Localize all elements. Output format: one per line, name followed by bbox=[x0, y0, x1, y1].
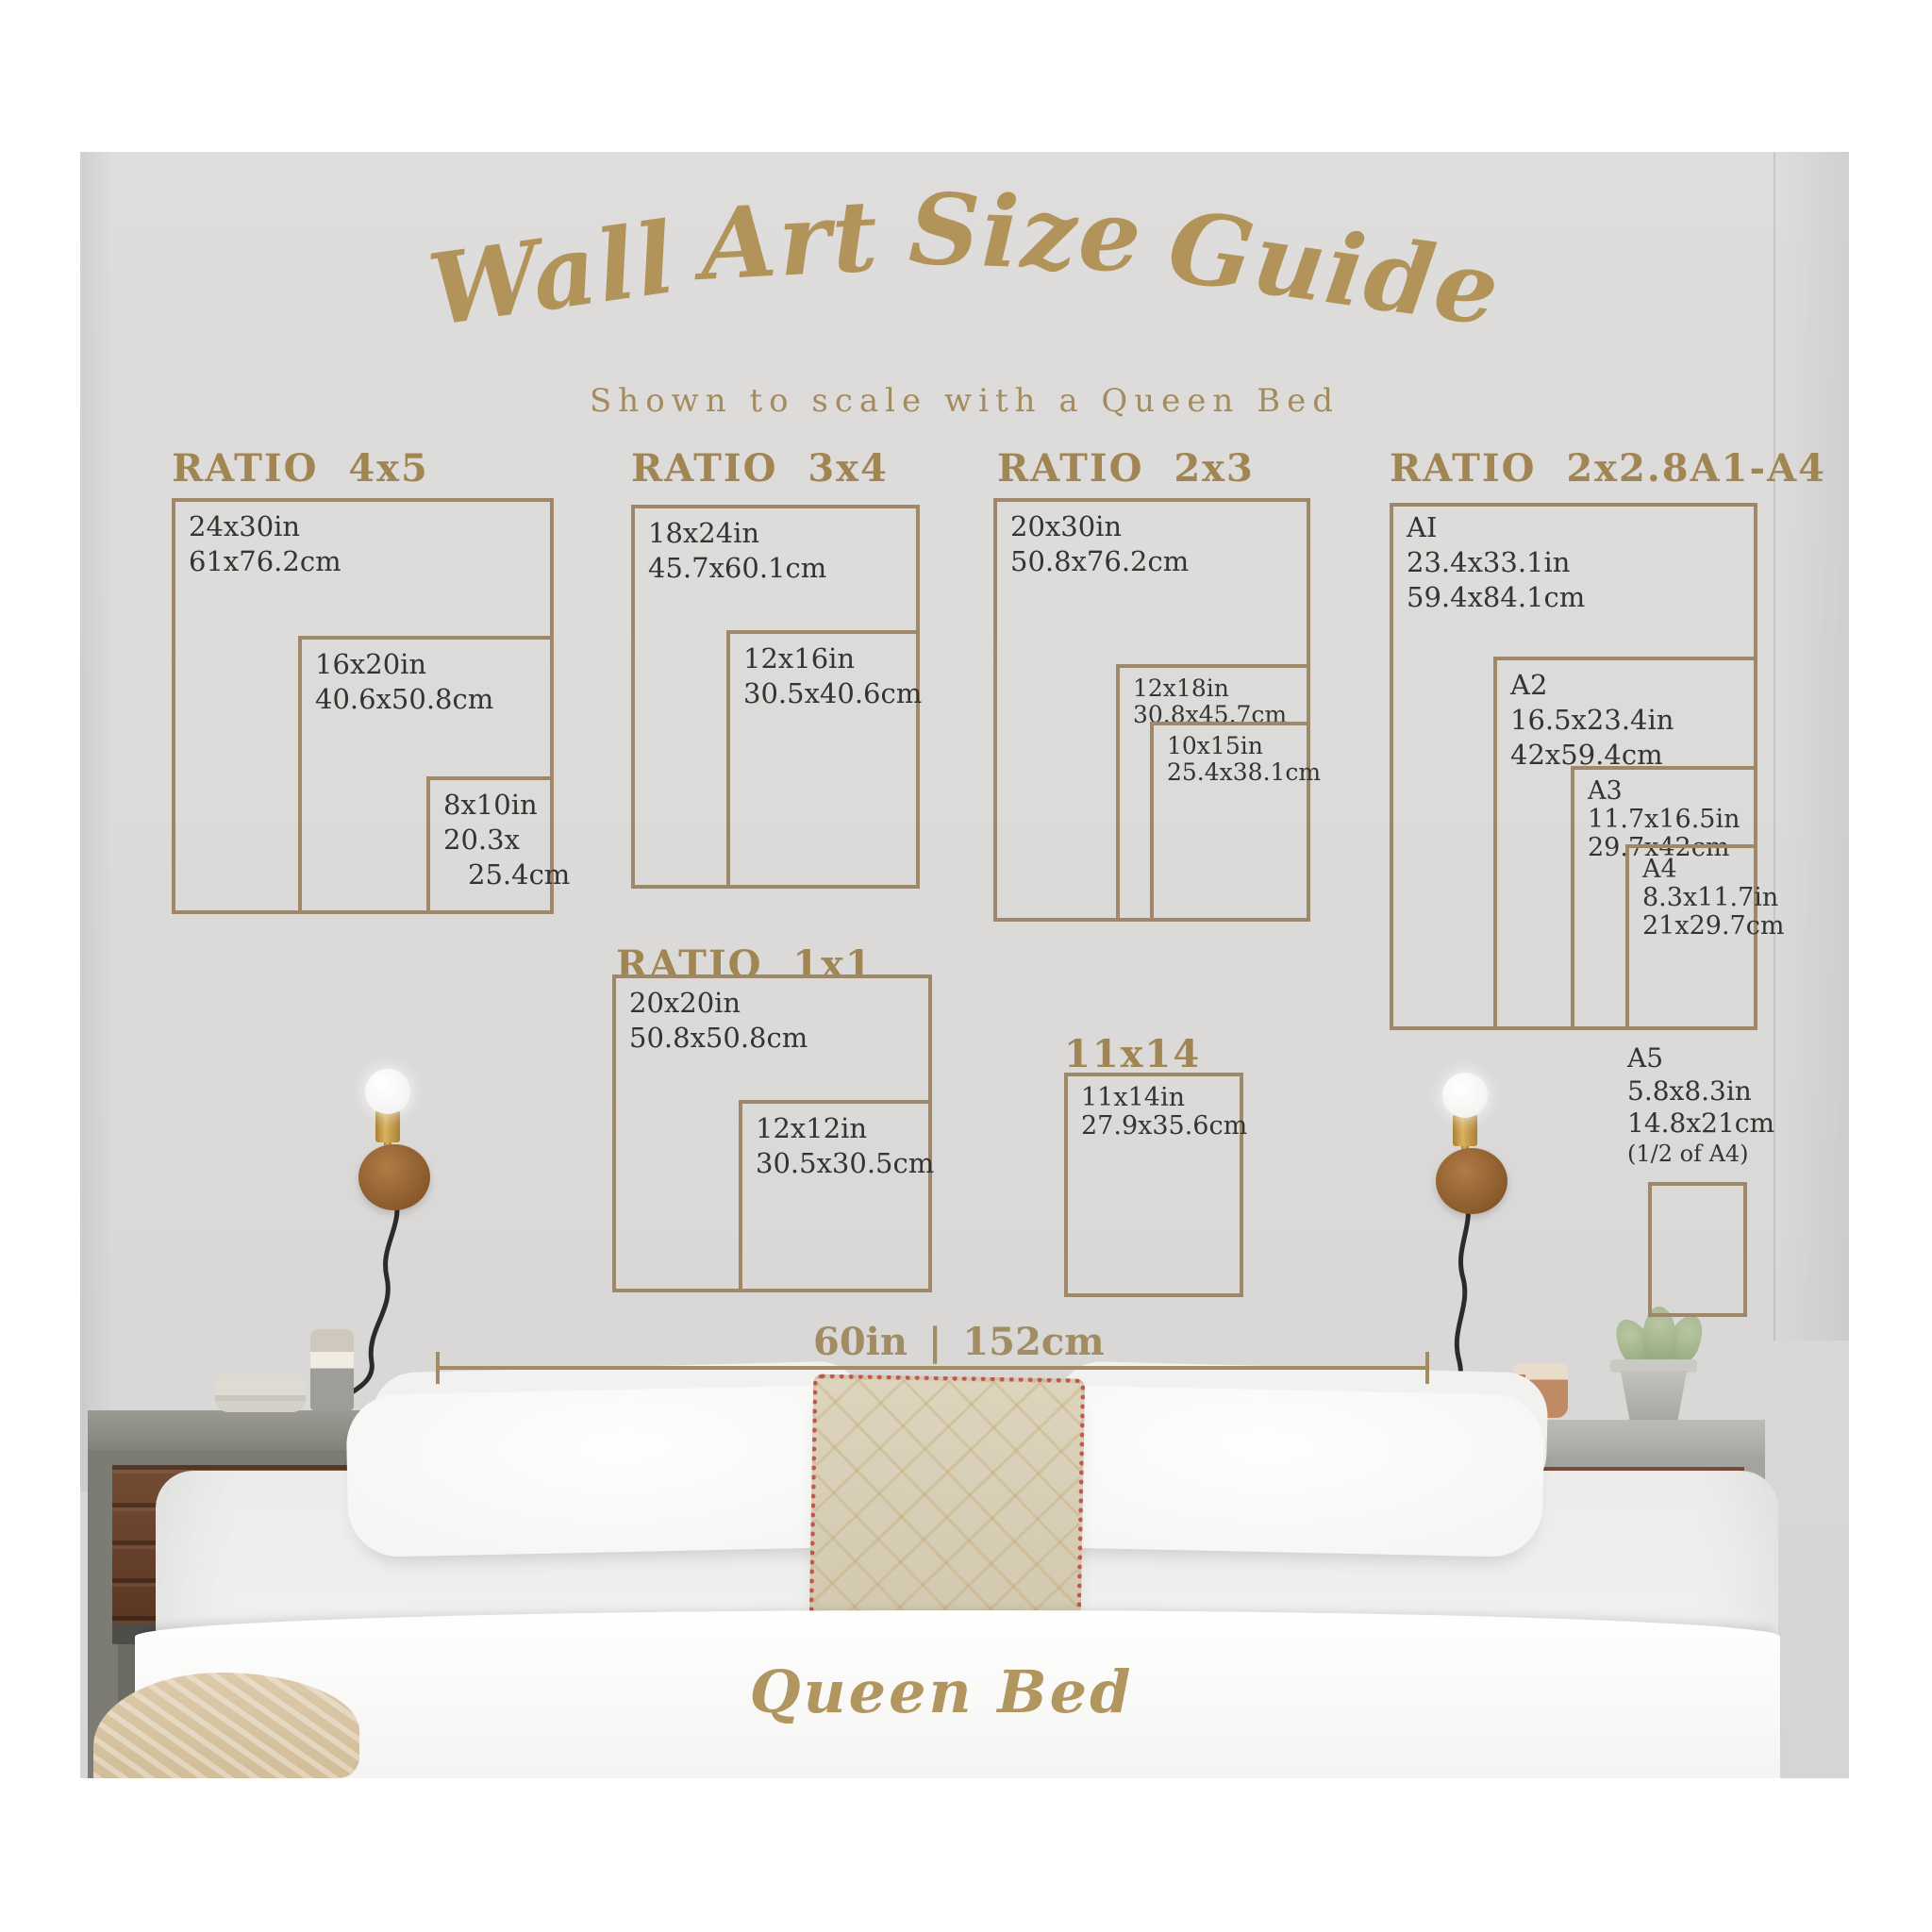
bed-width-tick-right bbox=[1425, 1352, 1429, 1384]
group-header-11x14: 11x14 bbox=[1064, 1032, 1201, 1076]
size-label: 10x15in25.4x38.1cm bbox=[1167, 733, 1321, 786]
bed-width-tick-left bbox=[436, 1352, 440, 1384]
bedroom-photo: Wall Art Size Guide Shown to scale with … bbox=[80, 152, 1849, 1778]
size-box-11x14: 11x14in27.9x35.6cm bbox=[1064, 1073, 1243, 1297]
size-label: 20x20in50.8x50.8cm bbox=[629, 986, 808, 1056]
queen-bed-label: Queen Bed bbox=[658, 1657, 1224, 1726]
size-box-10x15: 10x15in25.4x38.1cm bbox=[1150, 722, 1310, 922]
size-box-8x10: 8x10in20.3x 25.4cm bbox=[426, 776, 554, 914]
size-label: 16x20in40.6x50.8cm bbox=[315, 647, 493, 717]
group-header-2x3: RATIO 2x3 bbox=[997, 446, 1255, 491]
size-box-12x16: 12x16in30.5x40.6cm bbox=[726, 630, 920, 889]
size-label: AI23.4x33.1in 59.4x84.1cm bbox=[1407, 510, 1585, 615]
size-label: 12x12in30.5x30.5cm bbox=[756, 1111, 934, 1181]
size-label: 12x18in30.8x45.7cm bbox=[1133, 675, 1287, 728]
group-header-3x4: RATIO 3x4 bbox=[631, 446, 889, 491]
size-label: 11x14in27.9x35.6cm bbox=[1081, 1084, 1247, 1141]
title-word: Size bbox=[908, 171, 1145, 295]
size-label: A216.5x23.4in 42x59.4cm bbox=[1510, 668, 1674, 773]
size-label: 24x30in61x76.2cm bbox=[189, 509, 341, 579]
size-box-a4: A48.3x11.7in 21x29.7cm bbox=[1625, 844, 1757, 1030]
page-subtitle: Shown to scale with a Queen Bed bbox=[80, 382, 1849, 420]
size-label: 18x24in45.7x60.1cm bbox=[648, 516, 826, 586]
size-box-a5 bbox=[1648, 1182, 1747, 1317]
size-label: 8x10in20.3x 25.4cm bbox=[443, 788, 570, 892]
group-header-a-range: A1-A4 bbox=[1690, 446, 1826, 491]
group-header-2x2.8: RATIO 2x2.8 A1-A4 bbox=[1390, 446, 1757, 491]
title-word: Art bbox=[698, 177, 883, 303]
bed-width-label: 60in | 152cm bbox=[813, 1320, 1105, 1364]
size-label: 12x16in30.5x40.6cm bbox=[743, 641, 922, 711]
group-header-ratio-label: RATIO 2x2.8 bbox=[1390, 446, 1690, 491]
size-label: 20x30in50.8x76.2cm bbox=[1010, 509, 1189, 579]
size-box-12x12: 12x12in30.5x30.5cm bbox=[739, 1100, 932, 1292]
size-label: A48.3x11.7in 21x29.7cm bbox=[1642, 856, 1784, 941]
title-word: Guide bbox=[1161, 188, 1507, 349]
group-header-4x5: RATIO 4x5 bbox=[172, 446, 429, 491]
size-guide-poster: Wall Art Size Guide Shown to scale with … bbox=[0, 0, 1932, 1932]
size-label-a5: A5 5.8x8.3in 14.8x21cm (1/2 of A4) bbox=[1627, 1042, 1774, 1169]
size-guide-overlay: Wall Art Size Guide Shown to scale with … bbox=[80, 152, 1849, 1778]
page-title: Wall Art Size Guide bbox=[80, 192, 1849, 308]
title-word: Wall bbox=[423, 199, 684, 348]
bed-width-line bbox=[436, 1366, 1429, 1370]
